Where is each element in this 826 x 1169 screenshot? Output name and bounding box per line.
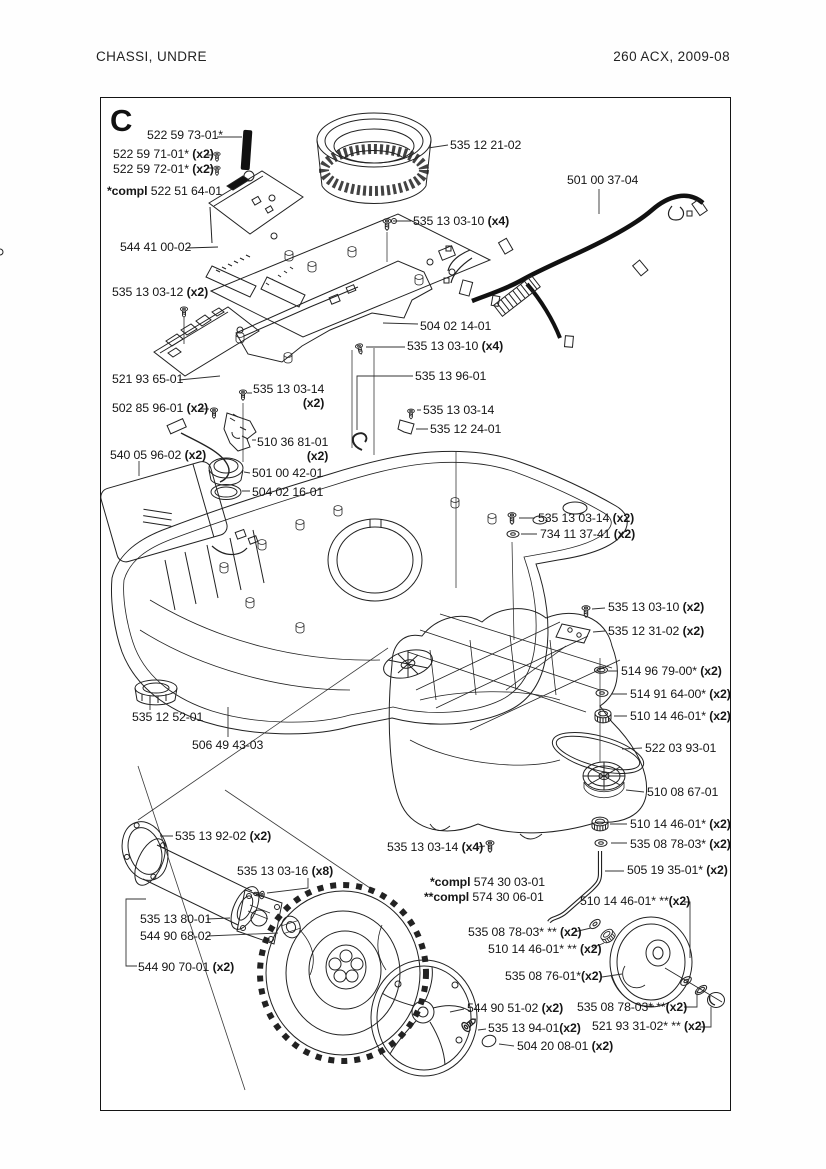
caster-axle-rod <box>549 851 617 945</box>
manual-page: CHASSI, UNDRE 260 ACX, 2009-08 C <box>0 0 826 1169</box>
leader-lines <box>126 137 711 1046</box>
wheel-motor <box>129 834 303 944</box>
contact-bracket <box>224 413 256 451</box>
cable-harness <box>444 196 707 348</box>
small-circuit-board <box>154 307 259 418</box>
misc-screws <box>486 841 494 853</box>
exploded-parts-diagram <box>0 0 826 1169</box>
caster-wheel <box>610 917 725 1008</box>
pulley-wheel <box>583 762 625 798</box>
rear-bracket-plate <box>556 624 590 643</box>
chassis-upper-body <box>111 451 627 734</box>
antenna-rod <box>241 130 254 181</box>
main-circuit-board <box>0 214 490 337</box>
chassis-top-tray <box>236 261 432 363</box>
top-circuit-board <box>209 152 303 243</box>
guide-lines <box>138 232 600 1090</box>
clip-hook <box>353 433 367 450</box>
axle-screw <box>460 1015 497 1048</box>
battery-pack <box>99 419 258 564</box>
sensor-bracket <box>239 390 414 434</box>
fan-housing <box>317 113 431 230</box>
chassis-lower-pan <box>380 609 646 839</box>
